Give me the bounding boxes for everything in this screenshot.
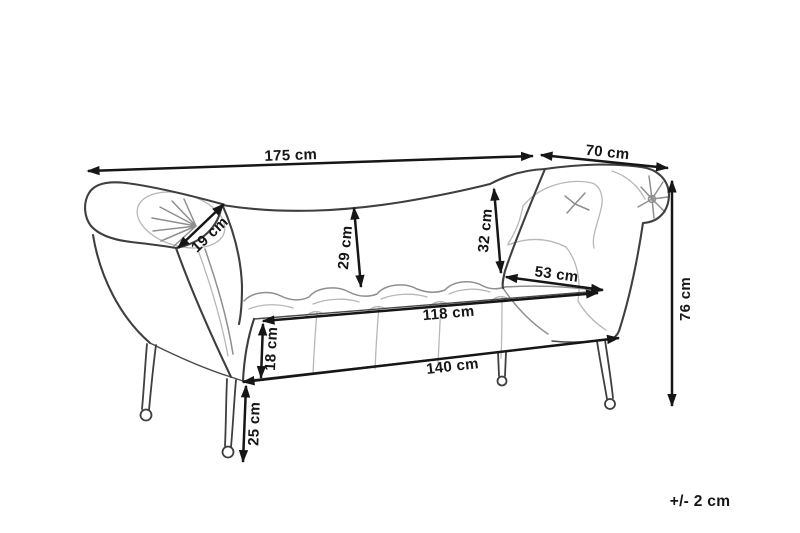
foot-rear-left	[141, 410, 152, 421]
leg-front-right	[597, 340, 615, 409]
tolerance-note: +/- 2 cm	[670, 493, 731, 510]
right-arm-tuft-pinch	[565, 193, 589, 213]
seat-left-edge	[243, 319, 254, 381]
right-armrest-outline	[490, 165, 669, 339]
dimension-backrest-height-left: 29 cm	[335, 208, 361, 287]
dimension-label: 29 cm	[335, 225, 356, 270]
dimension-label: 25 cm	[245, 402, 264, 447]
dimension-line	[494, 189, 501, 273]
leg-rear-left	[141, 344, 157, 421]
dimension-overall-height: 76 cm	[672, 181, 694, 406]
dimension-seat-top-width: 118 cm	[263, 293, 598, 324]
dimension-leg-height: 25 cm	[243, 386, 264, 462]
dimension-overall-width: 175 cm	[88, 146, 533, 171]
right-arm-tuft-curves	[508, 171, 645, 330]
foot-front-left	[223, 447, 234, 458]
left-arm-seam	[205, 249, 233, 354]
foot-front-right	[605, 399, 615, 409]
dimension-base-width: 140 cm	[243, 338, 619, 382]
diagram-canvas: 175 cm 70 cm 19 cm 29 cm 32 cm 53 cm 118…	[0, 0, 800, 533]
dimension-label: 19 cm	[188, 213, 232, 256]
dimension-label: 32 cm	[475, 208, 496, 253]
dimension-seat-thickness: 18 cm	[261, 324, 281, 378]
dimension-label: 175 cm	[264, 146, 317, 165]
leg-rear-right	[498, 352, 507, 386]
leg-front-left	[223, 379, 237, 458]
sofa-dimension-diagram: 175 cm 70 cm 19 cm 29 cm 32 cm 53 cm 118…	[0, 0, 800, 533]
foot-rear-right	[498, 377, 507, 386]
left-side-back-edge	[93, 235, 150, 343]
right-arm-seat-junction	[503, 288, 548, 334]
dimension-annotations: 175 cm 70 cm 19 cm 29 cm 32 cm 53 cm 118…	[88, 142, 730, 510]
dimension-backrest-height-right: 32 cm	[475, 189, 501, 273]
dimension-label: 76 cm	[677, 277, 694, 321]
seat-back-tuft-wave	[244, 282, 505, 301]
backrest-top-edge	[222, 184, 490, 211]
dimension-label: 118 cm	[422, 303, 475, 324]
dimension-line	[354, 208, 361, 287]
dimension-label: 18 cm	[262, 326, 281, 371]
